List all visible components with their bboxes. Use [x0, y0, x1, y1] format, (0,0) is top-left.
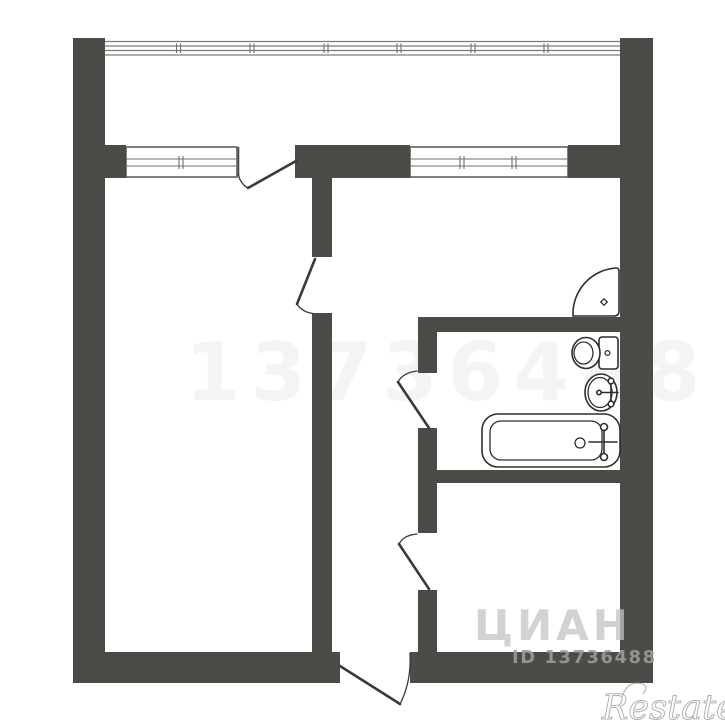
watermark-listing-id: ID 13736488: [512, 647, 657, 668]
wall-interior-2: [418, 590, 437, 655]
wall-bottom-left: [73, 652, 340, 683]
toilet-tank: [599, 337, 618, 369]
wall-interior-1: [312, 313, 332, 655]
window-right: [410, 147, 568, 177]
wall-top-segment: [295, 145, 410, 178]
wall-bathroom-top: [418, 317, 620, 332]
floor-plan: 13736488: [0, 0, 725, 725]
watermark-portal: ЦИАН: [474, 601, 632, 650]
window-left: [126, 147, 237, 177]
wall-top-segment: [105, 145, 126, 178]
wall-right: [620, 38, 653, 683]
bathtub: [482, 414, 620, 467]
sink: [585, 374, 618, 411]
wall-interior-1: [312, 178, 332, 257]
floor-plan-image: 13736488: [0, 0, 725, 725]
wall-left: [73, 38, 105, 683]
wall-bathroom-bottom: [418, 470, 620, 483]
brand-logo: Restate: [601, 683, 725, 725]
watermark-brand: Restate: [601, 688, 725, 725]
toilet: [572, 337, 618, 369]
wall-top-segment: [568, 145, 620, 178]
